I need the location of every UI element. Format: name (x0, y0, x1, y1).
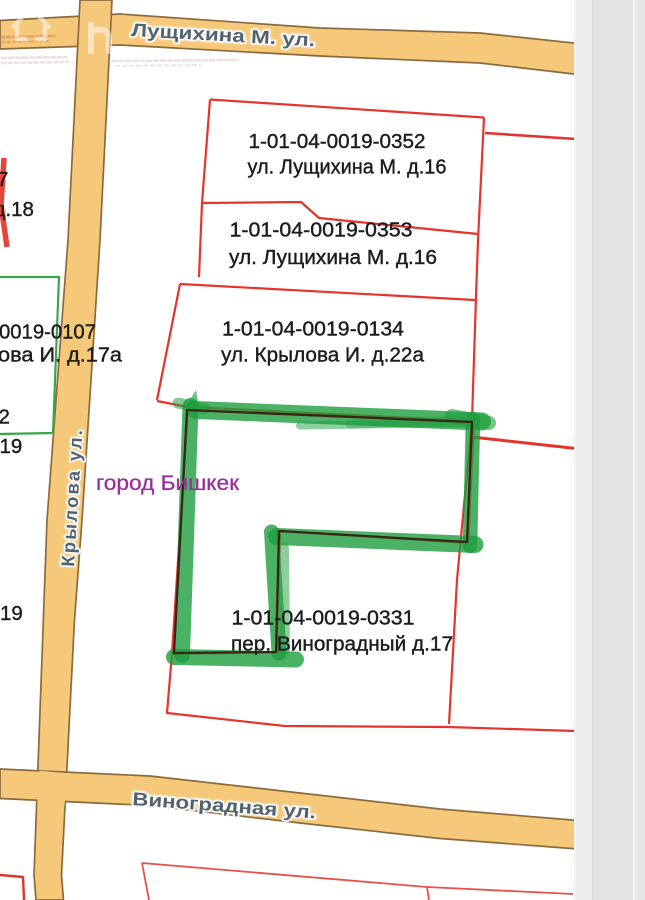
svg-text:1-01-04-0019-0352: 1-01-04-0019-0352 (249, 130, 426, 153)
svg-text:1-01-04-0019-0331: 1-01-04-0019-0331 (232, 607, 415, 630)
svg-text:7: 7 (0, 168, 8, 191)
svg-text:пер. Виноградный д.17: пер. Виноградный д.17 (231, 633, 453, 656)
svg-text:19: 19 (0, 435, 22, 458)
svg-text:город Бишкек: город Бишкек (96, 471, 240, 495)
svg-text:ова И. д.17а: ова И. д.17а (0, 344, 123, 367)
svg-text:1-01-04-0019-0134: 1-01-04-0019-0134 (222, 318, 404, 341)
svg-text:ул. Лущихина М. д.16: ул. Лущихина М. д.16 (248, 156, 447, 179)
svg-text:0019-0107: 0019-0107 (0, 321, 96, 344)
svg-text:ул. Лущихина М. д.16: ул. Лущихина М. д.16 (229, 246, 437, 269)
svg-text:1-01-04-0019-0353: 1-01-04-0019-0353 (230, 218, 413, 241)
svg-text:д.18: д.18 (0, 198, 34, 221)
svg-text:2: 2 (0, 406, 10, 429)
svg-text:19: 19 (0, 602, 23, 625)
svg-text:ул. Крылова И. д.22а: ул. Крылова И. д.22а (221, 344, 425, 367)
